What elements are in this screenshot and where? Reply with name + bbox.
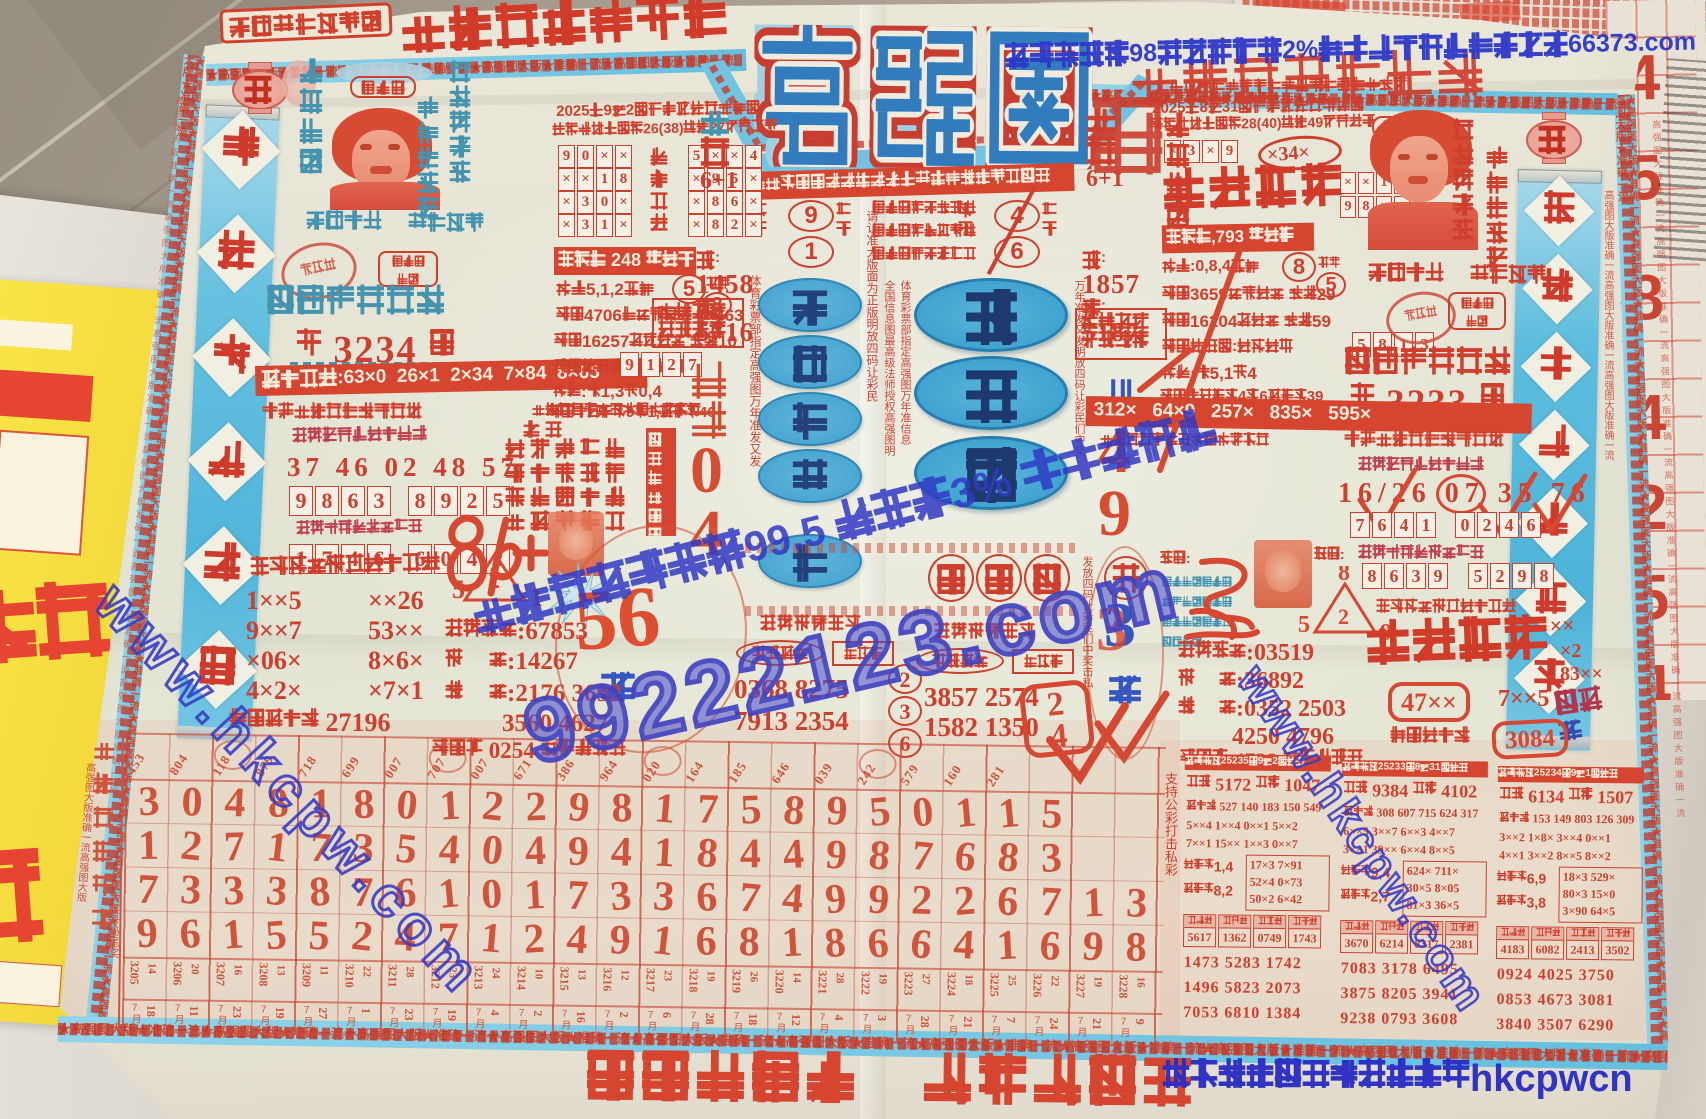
svg-text:5: 5 <box>1298 612 1310 638</box>
svg-text:5: 5 <box>452 575 465 604</box>
svg-text:2: 2 <box>1338 604 1349 629</box>
svg-text:8: 8 <box>1338 566 1350 586</box>
